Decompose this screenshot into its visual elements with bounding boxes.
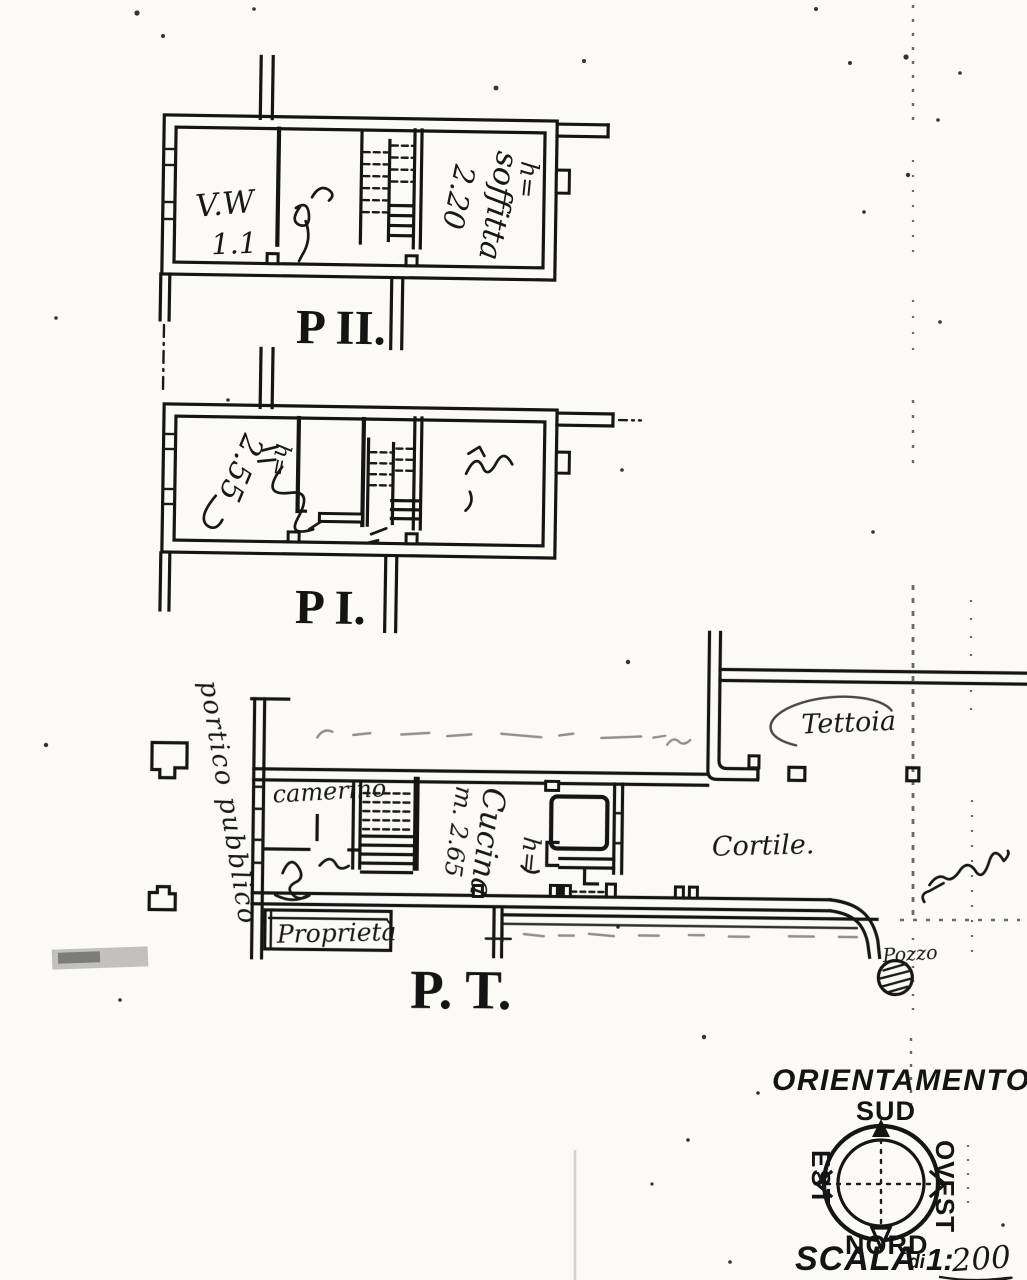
scale-note: SCALA di 1: 200 — [795, 1239, 1012, 1280]
cortile-label: Cortile. — [712, 829, 815, 862]
scale-di: di — [908, 1252, 926, 1273]
proprieta-box: Proprietà — [265, 910, 397, 951]
scale-value: 200 — [949, 1239, 1012, 1279]
illegible-scribble-p2 — [294, 188, 332, 262]
pozzo-well: Pozzo — [878, 941, 938, 995]
faint-erased-annotation — [317, 730, 690, 745]
p2-attic-height: 2.20 — [435, 161, 482, 232]
scale-ratio: 1: — [926, 1242, 954, 1277]
portico-pillar-2 — [149, 886, 175, 909]
illegible-scribble-cortile — [923, 850, 1009, 903]
compass-title: ORIENTAMENTO — [772, 1064, 1027, 1097]
proprieta-label: Proprietà — [276, 917, 397, 949]
p1-height-note: 2.55 — [211, 428, 271, 507]
p2-floor-label: P II. — [296, 299, 387, 355]
illegible-scribble-p1-bottom — [367, 528, 386, 543]
plan-p1: 2.55 h= P I. — [160, 347, 642, 639]
right-room-pt — [544, 781, 622, 897]
compass-east: EST — [806, 1150, 836, 1207]
door-mark-L — [584, 870, 597, 884]
p2-room-vw-sub: 1.1 — [210, 226, 257, 262]
floor-plan-drawing: V.W 1.1 h= soffitta 2.20 P II. — [0, 0, 1027, 1280]
kitchen-note: m. 2.65 Cucina h= — [438, 784, 546, 899]
compass-south: SUD — [856, 1096, 916, 1126]
camerino-label: camerino — [272, 774, 387, 809]
compass: ORIENTAMENTO SUD NORD EST OVEST — [772, 1064, 1027, 1260]
pozzo-label: Pozzo — [881, 942, 938, 967]
p2-attic-note: h= soffitta 2.20 — [435, 148, 545, 264]
staircase-p1 — [367, 417, 422, 529]
boundary-strip — [486, 910, 878, 962]
p2-attic-name: soffitta — [471, 149, 525, 263]
plan-p2: V.W 1.1 h= soffitta 2.20 P II. — [159, 55, 609, 400]
plan-pt: portico pubblico Tettoia — [148, 625, 1027, 1027]
kitchen-h: h= — [515, 835, 546, 873]
staircase-p2 — [360, 129, 422, 248]
scale-word: SCALA — [795, 1240, 917, 1278]
pt-floor-label: P. T. — [410, 959, 512, 1021]
illegible-scribble-p1-right — [466, 447, 513, 512]
p2-room-vw-label: V.W — [194, 184, 258, 225]
scanned-floor-plan-page: V.W 1.1 h= soffitta 2.20 P II. — [0, 0, 1027, 1280]
tettoia-label: Tettoia — [801, 706, 897, 741]
portico-pillar-1 — [152, 742, 187, 777]
compass-west: OVEST — [930, 1140, 960, 1233]
p1-floor-label: P I. — [295, 579, 367, 635]
